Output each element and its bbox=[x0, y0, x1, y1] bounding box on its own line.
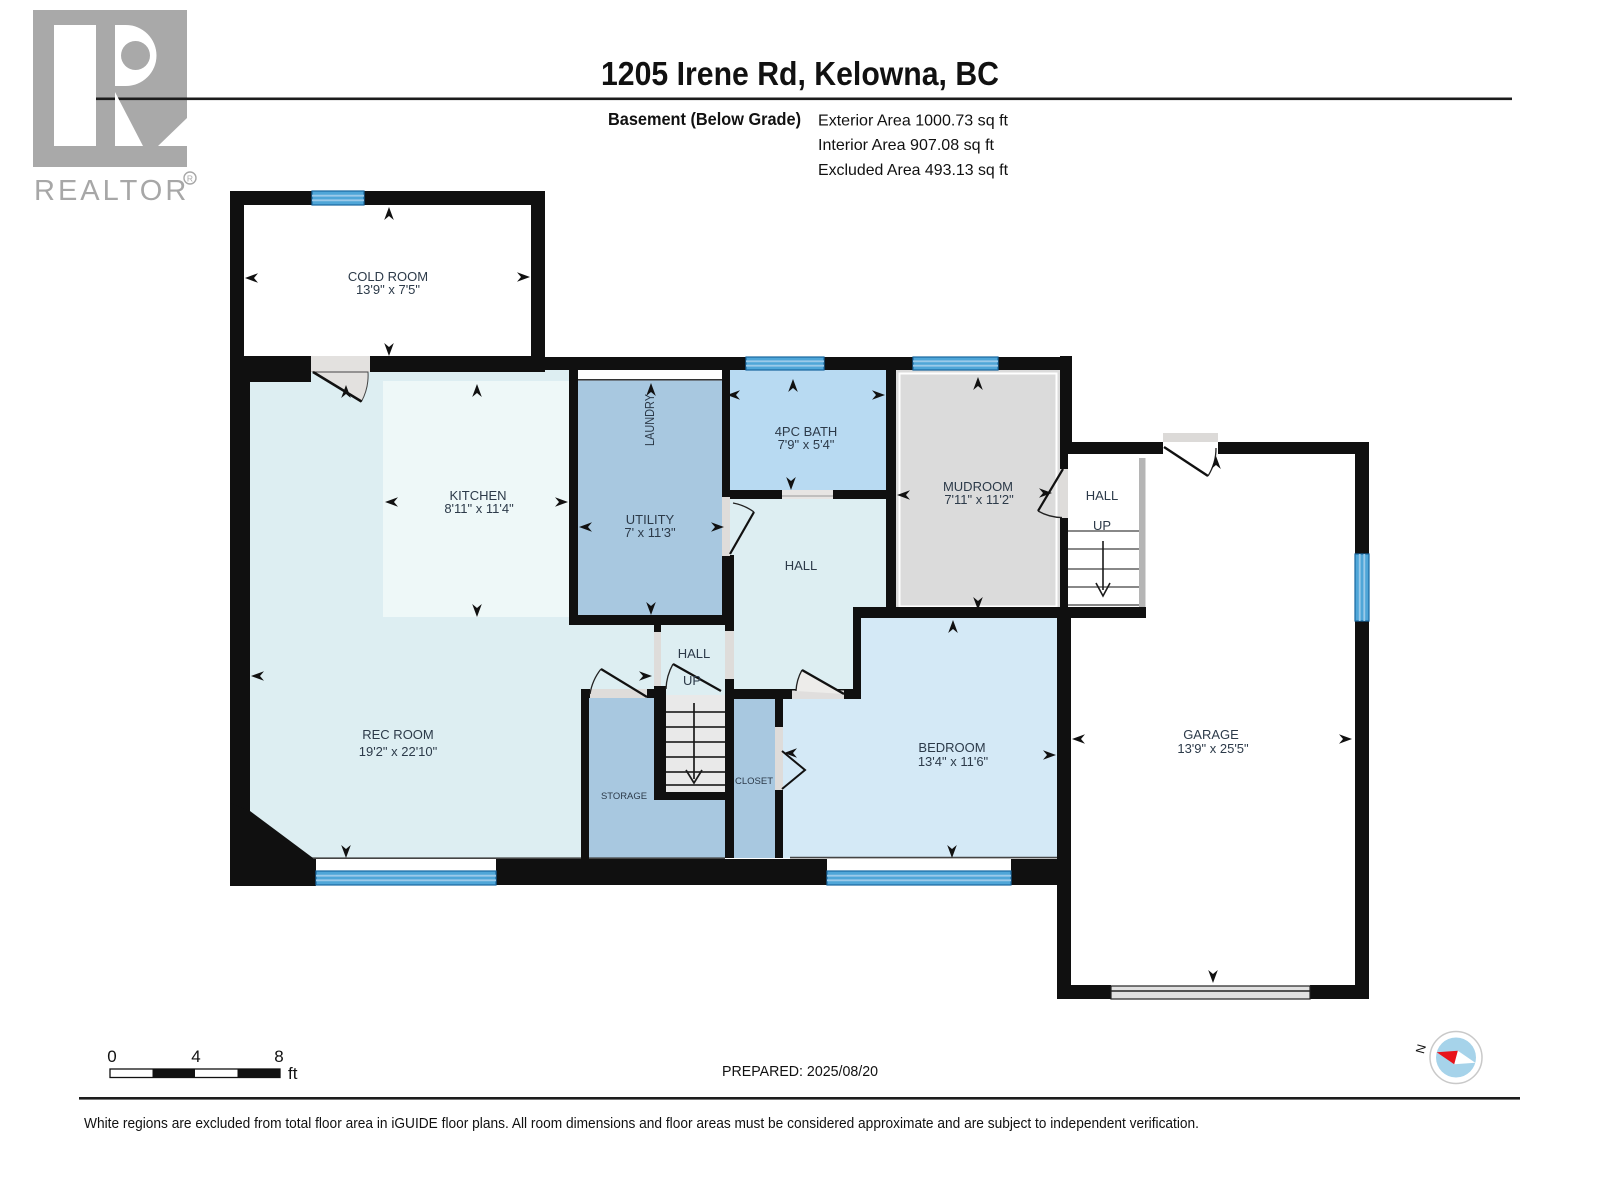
svg-text:Excluded Area 493.13 sq ft: Excluded Area 493.13 sq ft bbox=[818, 162, 1009, 179]
svg-text:8: 8 bbox=[274, 1047, 283, 1066]
svg-text:GARAGE: GARAGE bbox=[1183, 727, 1239, 742]
svg-text:LAUNDRY: LAUNDRY bbox=[642, 394, 657, 446]
svg-text:BEDROOM: BEDROOM bbox=[918, 740, 985, 755]
svg-text:7' x 11'3": 7' x 11'3" bbox=[624, 525, 676, 540]
svg-text:Basement (Below Grade): Basement (Below Grade) bbox=[608, 109, 801, 129]
svg-text:13'9" x 25'5": 13'9" x 25'5" bbox=[1177, 741, 1249, 756]
svg-text:19'2" x 22'10": 19'2" x 22'10" bbox=[359, 744, 438, 759]
svg-text:0: 0 bbox=[107, 1047, 116, 1066]
svg-text:HALL: HALL bbox=[785, 558, 818, 573]
svg-text:UP: UP bbox=[1093, 518, 1111, 533]
svg-text:UP: UP bbox=[683, 673, 701, 688]
svg-text:R: R bbox=[187, 174, 193, 184]
svg-text:1205 Irene Rd, Kelowna, BC: 1205 Irene Rd, Kelowna, BC bbox=[601, 56, 999, 93]
svg-text:7'9" x 5'4": 7'9" x 5'4" bbox=[778, 437, 835, 452]
svg-text:White regions are excluded fro: White regions are excluded from total fl… bbox=[84, 1115, 1199, 1132]
svg-text:REC ROOM: REC ROOM bbox=[362, 727, 434, 742]
svg-text:4: 4 bbox=[191, 1047, 200, 1066]
svg-text:STORAGE: STORAGE bbox=[601, 791, 647, 802]
svg-text:13'9" x 7'5": 13'9" x 7'5" bbox=[356, 282, 420, 297]
svg-text:7'11" x 11'2": 7'11" x 11'2" bbox=[944, 492, 1014, 507]
svg-text:CLOSET: CLOSET bbox=[735, 776, 773, 787]
svg-text:HALL: HALL bbox=[678, 646, 711, 661]
svg-text:Exterior Area 1000.73 sq ft: Exterior Area 1000.73 sq ft bbox=[818, 113, 1009, 130]
svg-text:PREPARED: 2025/08/20: PREPARED: 2025/08/20 bbox=[722, 1063, 878, 1080]
svg-text:8'11" x 11'4": 8'11" x 11'4" bbox=[444, 501, 514, 516]
svg-text:ft: ft bbox=[288, 1064, 298, 1083]
svg-text:13'4" x 11'6": 13'4" x 11'6" bbox=[918, 754, 989, 769]
svg-text:Interior Area 907.08 sq ft: Interior Area 907.08 sq ft bbox=[818, 137, 995, 154]
svg-text:REALTOR: REALTOR bbox=[34, 175, 189, 207]
svg-text:HALL: HALL bbox=[1086, 488, 1119, 503]
